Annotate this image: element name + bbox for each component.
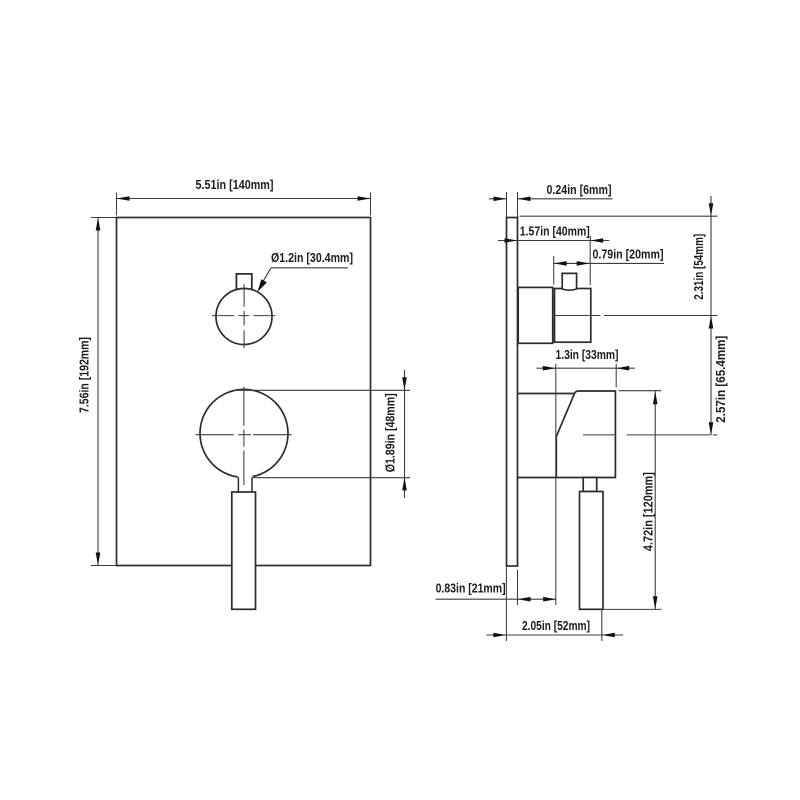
svg-text:4.72in [120mm]: 4.72in [120mm] xyxy=(641,472,656,551)
svg-text:Ø1.2in [30.4mm]: Ø1.2in [30.4mm] xyxy=(271,250,353,265)
svg-text:1.3in [33mm]: 1.3in [33mm] xyxy=(556,347,619,362)
svg-text:0.24in [6mm]: 0.24in [6mm] xyxy=(547,182,612,197)
svg-text:0.79in [20mm]: 0.79in [20mm] xyxy=(593,247,664,262)
svg-text:1.57in [40mm]: 1.57in [40mm] xyxy=(520,223,590,238)
svg-text:2.05in [52mm]: 2.05in [52mm] xyxy=(522,618,590,633)
svg-text:Ø1.89in [48mm]: Ø1.89in [48mm] xyxy=(382,393,397,472)
svg-text:0.83in [21mm]: 0.83in [21mm] xyxy=(436,581,506,596)
svg-text:2.31in [54mm]: 2.31in [54mm] xyxy=(691,234,706,300)
svg-text:7.56in [192mm]: 7.56in [192mm] xyxy=(77,337,92,413)
svg-text:5.51in [140mm]: 5.51in [140mm] xyxy=(196,177,274,192)
svg-text:2.57in [65.4mm]: 2.57in [65.4mm] xyxy=(713,336,728,423)
